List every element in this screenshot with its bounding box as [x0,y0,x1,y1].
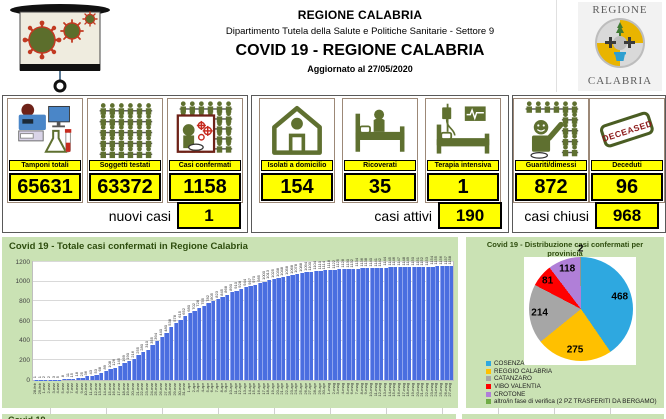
legend-label: CATANZARO [494,375,532,382]
legend-item-vibo-valentia: VIBO VALENTIA [486,383,657,391]
stat-box-isolati-a-domicilio: Isolati a domicilio154 [259,98,335,203]
legend-swatch [486,369,491,374]
summary-label: casi attivi [374,208,432,224]
legend-item-reggio-calabria: REGGIO CALABRIA [486,368,657,376]
stat-label: Ricoverati [344,160,416,171]
y-axis-label: 0 [4,377,30,384]
page-title: COVID 19 - REGIONE CALABRIA [140,42,580,60]
calabria-emblem-icon [593,16,647,70]
summary-label: casi chiusi [524,208,589,224]
y-axis-label: 200 [4,357,30,364]
header-org: REGIONE CALABRIA [140,8,580,22]
stat-value: 1158 [169,173,241,201]
legend-label: altro/in fase di verifica (2 PZ TRASFERI… [494,398,657,405]
stat-boxes-row: Isolati a domicilio154 Ricoverati35 Tera… [252,98,508,203]
legend-swatch [486,384,491,389]
stat-label: Isolati a domicilio [261,160,333,171]
stat-box-deceduti: DECEASED Deceduti96 [589,98,665,203]
header-divider [556,0,557,92]
y-axis-label: 1000 [4,278,30,285]
legend-item-cosenza: COSENZA [486,360,657,368]
calabria-logo: REGIONE CALABRIA [578,2,662,91]
cutoff-panel-title: Covid 19 - [8,415,51,419]
intensive-care-icon [427,100,499,160]
people-grid-icon [89,100,161,160]
y-axis-label: 1200 [4,259,30,266]
header-text: REGIONE CALABRIA Dipartimento Tutela del… [140,8,580,74]
virus-projector-icon [6,2,118,99]
stats-group-attivi: Isolati a domicilio154 Ricoverati35 Tera… [251,95,509,233]
x-axis-label: 27-mag [448,383,452,397]
legend-swatch [486,376,491,381]
y-axis-label: 600 [4,318,30,325]
stat-label: Tamponi totali [9,160,81,171]
legend-label: REGGIO CALABRIA [494,368,552,375]
stats-group-confermati: Tamponi totali65631Soggetti testati63372… [2,95,248,233]
legend-swatch [486,392,491,397]
legend-item-altro-in-fase-di-verific: altro/in fase di verifica (2 PZ TRASFERI… [486,398,657,406]
legend-label: COSENZA [494,360,524,367]
y-axis-label: 800 [4,298,30,305]
stat-label: Terapia intensiva [427,160,499,171]
summary-value: 968 [595,202,659,229]
pie-chart-title: Covid 19 - Distribuzione casi confermati… [466,240,664,258]
stat-box-terapia-intensiva: Terapia intensiva1 [425,98,501,203]
pie-legend: COSENZAREGGIO CALABRIACATANZAROVIBO VALE… [486,360,657,406]
summary-casi-chiusi: casi chiusi968 [524,202,659,229]
deceased-stamp-icon: DECEASED [591,100,663,160]
covid-dashboard: REGIONE CALABRIA Dipartimento Tutela del… [0,0,666,419]
stat-boxes-row: Guariti/dimessi872 DECEASED Deceduti96 [513,98,665,203]
bar-plot-area: 020040060080010001200128-feb129-feb21-ma… [32,261,454,381]
updated-date: Aggiornato al 27/05/2020 [140,64,580,74]
lab-equipment-icon [9,100,81,160]
bar-data-label: 1158 [448,256,452,265]
legend-label: CROTONE [494,391,525,398]
pie-slice-label: 2 [578,243,584,254]
stat-label: Soggetti testati [89,160,161,171]
pie-slice-label: 468 [611,291,628,302]
bar [449,266,453,380]
stat-label: Casi confermati [169,160,241,171]
stat-value: 65631 [9,173,81,201]
stats-group-chiusi: Guariti/dimessi872 DECEASED Deceduti96ca… [512,95,666,233]
pie-slice-label: 81 [542,275,553,286]
stat-value: 154 [261,173,333,201]
stat-value: 63372 [89,173,161,201]
stat-value: 872 [515,173,587,201]
stat-label: Deceduti [591,160,663,171]
summary-nuovi-casi: nuovi casi1 [109,202,241,229]
cutoff-panel-left: Covid 19 - [2,414,456,419]
stat-box-guariti-dimessi: Guariti/dimessi872 [513,98,589,203]
house-icon [261,100,333,160]
pie-slice-label: 214 [531,308,548,319]
stat-value: 35 [344,173,416,201]
logo-word-top: REGIONE [578,4,662,16]
hospital-bed-icon [344,100,416,160]
legend-item-crotone: CROTONE [486,390,657,398]
legend-swatch [486,361,491,366]
stat-box-casi-confermati: Casi confermati1158 [167,98,243,203]
summary-value: 190 [438,202,502,229]
summary-casi-attivi: casi attivi190 [374,202,502,229]
pie-slice-label: 118 [559,263,575,274]
bar-chart-panel: Covid 19 - Totale casi confermati in Reg… [2,237,458,408]
stat-boxes-row: Tamponi totali65631Soggetti testati63372… [3,98,247,203]
stat-value: 96 [591,173,663,201]
legend-item-catanzaro: CATANZARO [486,375,657,383]
pie-chart-panel: Covid 19 - Distribuzione casi confermati… [466,237,664,408]
stat-box-soggetti-testati: Soggetti testati63372 [87,98,163,203]
bar-chart-title: Covid 19 - Totale casi confermati in Reg… [9,241,248,252]
stat-value: 1 [427,173,499,201]
y-axis-label: 400 [4,337,30,344]
pie-slice-label: 275 [567,345,584,356]
summary-value: 1 [177,202,241,229]
logo-word-bottom: CALABRIA [578,75,662,87]
stat-box-ricoverati: Ricoverati35 [342,98,418,203]
recovered-person-icon [515,100,587,160]
header-dept: Dipartimento Tutela della Salute e Polit… [140,26,580,37]
legend-swatch [486,399,491,404]
stat-box-tamponi-totali: Tamponi totali65631 [7,98,83,203]
coughing-person-icon [169,100,241,160]
summary-label: nuovi casi [109,208,171,224]
stat-label: Guariti/dimessi [515,160,587,171]
legend-label: VIBO VALENTIA [494,383,541,390]
pie-title-line1: Covid 19 - Distribuzione casi confermati… [466,240,664,249]
cutoff-panel-right [462,414,664,419]
